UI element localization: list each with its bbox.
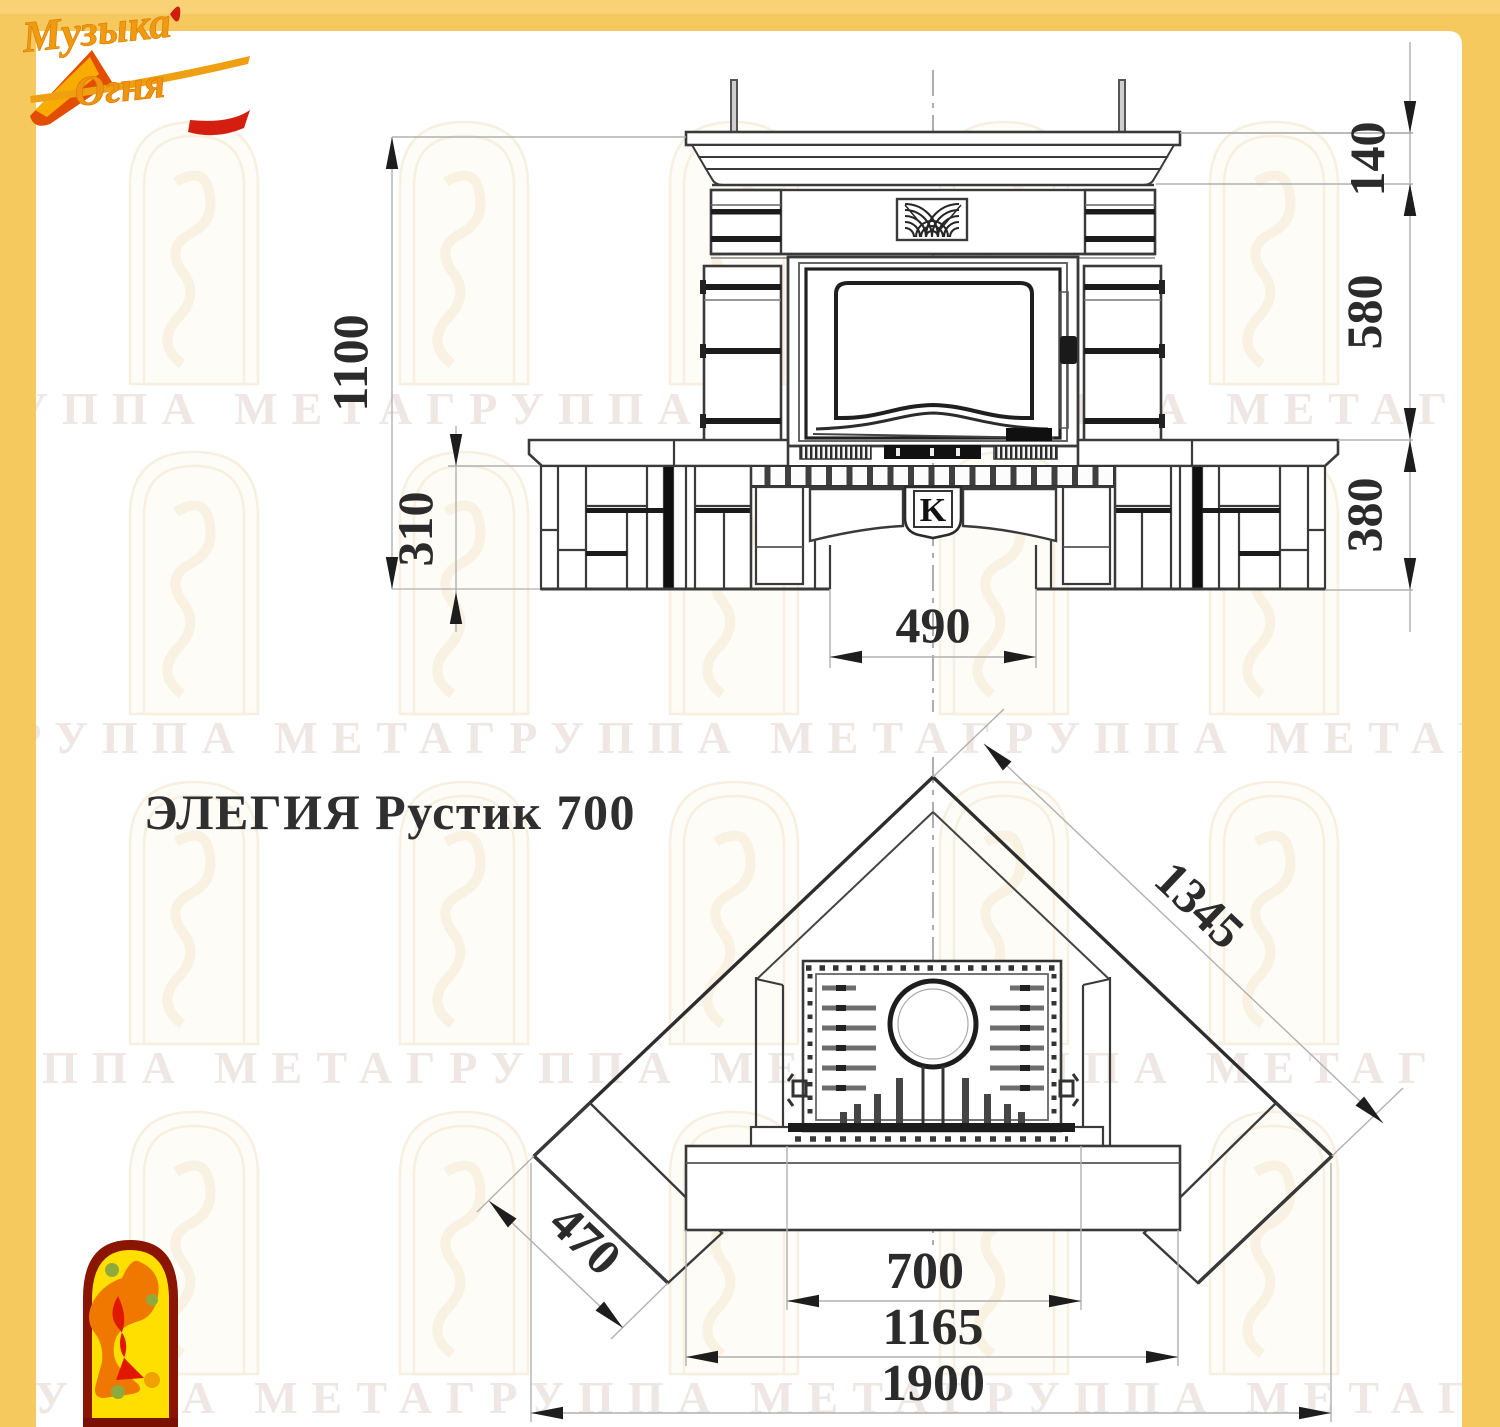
svg-text:K: K xyxy=(920,492,947,529)
svg-text:1900: 1900 xyxy=(881,1355,985,1412)
svg-text:ГРУППА МЕТАГРУППА МЕТАГРУППА М: ГРУППА МЕТАГРУППА МЕТАГРУППА МЕТАГ xyxy=(0,1372,1481,1423)
svg-text:ГРУППА МЕТАГРУППА МЕТАГРУППА М: ГРУППА МЕТАГРУППА МЕТАГРУППА МЕТАГ xyxy=(0,712,1500,763)
svg-text:ГРУППА МЕТАГРУППА МЕТАГРУППА М: ГРУППА МЕТАГРУППА МЕТАГРУППА МЕТАГ xyxy=(0,1042,1441,1093)
svg-text:Огня: Огня xyxy=(72,61,167,116)
svg-text:490: 490 xyxy=(896,597,971,653)
svg-text:310: 310 xyxy=(387,492,443,567)
svg-text:140: 140 xyxy=(1339,122,1395,197)
svg-text:700: 700 xyxy=(886,1243,964,1300)
svg-text:ЭЛЕГИЯ Рустик 700: ЭЛЕГИЯ Рустик 700 xyxy=(144,784,636,840)
svg-text:1100: 1100 xyxy=(322,314,378,411)
svg-text:380: 380 xyxy=(1336,478,1392,553)
svg-text:1165: 1165 xyxy=(882,1299,983,1356)
svg-text:580: 580 xyxy=(1336,275,1392,350)
